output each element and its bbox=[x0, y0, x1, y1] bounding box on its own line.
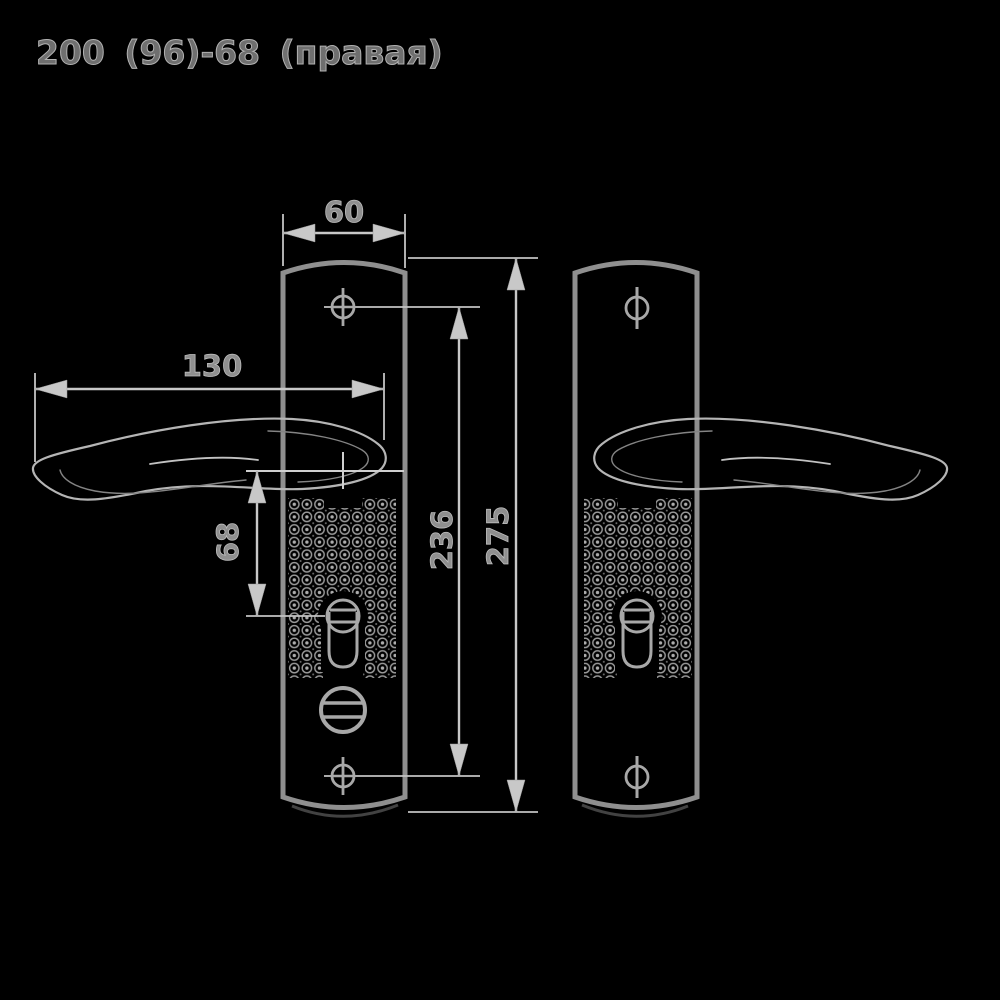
handle-center-crossmark bbox=[246, 452, 404, 489]
right-plate-view bbox=[575, 263, 947, 817]
arrowhead-right-icon bbox=[352, 380, 384, 398]
arrowhead-down-icon bbox=[450, 744, 468, 776]
dim-label-plate-height: 275 bbox=[481, 506, 515, 567]
turn-knob bbox=[321, 688, 365, 732]
bottom-screw-slotted bbox=[626, 756, 648, 798]
dimension-plate-width: 60 bbox=[283, 195, 405, 268]
arrowhead-down-icon bbox=[248, 584, 266, 616]
drawing-title: 200 (96)-68 (правая) bbox=[36, 33, 443, 72]
arrowhead-down-icon bbox=[507, 780, 525, 812]
top-screw-slotted bbox=[626, 287, 648, 329]
arrowhead-up-icon bbox=[507, 258, 525, 290]
dimension-screw-spacing: 236 bbox=[425, 307, 468, 776]
drawing-canvas: 60 130 68 236 275 200 (96)-68 (правая) bbox=[0, 0, 1000, 1000]
dim-label-plate-width: 60 bbox=[324, 195, 364, 229]
dim-label-handle-length: 130 bbox=[182, 349, 243, 383]
dim-label-handle-to-keyhole: 68 bbox=[211, 522, 245, 562]
dimension-handle-length: 130 bbox=[35, 349, 384, 462]
arrowhead-left-icon bbox=[283, 224, 315, 242]
technical-drawing: 60 130 68 236 275 200 (96)-68 (правая) bbox=[0, 0, 1000, 1000]
arrowhead-right-icon bbox=[373, 224, 405, 242]
arrowhead-up-icon bbox=[450, 307, 468, 339]
right-plate-body bbox=[575, 263, 947, 817]
dim-label-screw-spacing: 236 bbox=[425, 510, 459, 571]
arrowhead-left-icon bbox=[35, 380, 67, 398]
